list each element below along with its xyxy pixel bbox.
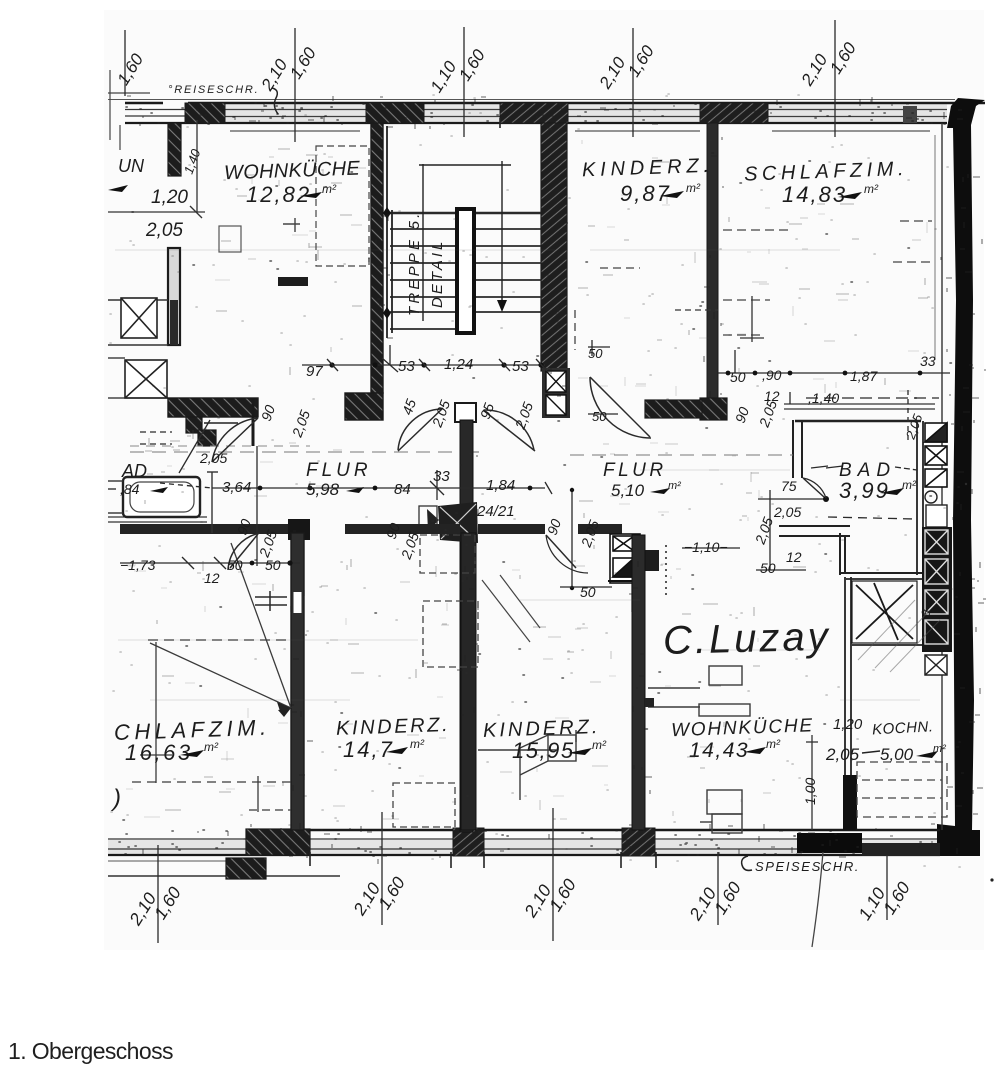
svg-text:53: 53 bbox=[512, 358, 529, 375]
svg-text:14,7: 14,7 bbox=[343, 737, 394, 762]
svg-text:−1,10−: −1,10− bbox=[684, 539, 728, 555]
svg-text:UN: UN bbox=[118, 156, 145, 176]
svg-text:1,84: 1,84 bbox=[486, 477, 515, 494]
svg-text:15,95: 15,95 bbox=[512, 738, 575, 763]
svg-text:3,99: 3,99 bbox=[839, 478, 890, 503]
svg-text:5,00: 5,00 bbox=[880, 745, 914, 764]
svg-text:KINDERZ.: KINDERZ. bbox=[582, 155, 714, 182]
svg-text:12: 12 bbox=[786, 549, 802, 565]
svg-text:1. Obergeschoss: 1. Obergeschoss bbox=[8, 1038, 173, 1064]
svg-text:KINDERZ.: KINDERZ. bbox=[336, 714, 451, 740]
svg-text:m²: m² bbox=[933, 743, 946, 755]
svg-text:AD: AD bbox=[121, 461, 147, 481]
svg-text:C.Luzay: C.Luzay bbox=[662, 615, 831, 663]
svg-text:12: 12 bbox=[204, 570, 220, 586]
svg-text:84: 84 bbox=[394, 481, 411, 498]
svg-text:50: 50 bbox=[227, 557, 243, 573]
svg-text:DETAIL: DETAIL bbox=[429, 239, 446, 308]
svg-text:50: 50 bbox=[760, 560, 776, 576]
svg-text:50: 50 bbox=[592, 409, 607, 424]
svg-text:m²: m² bbox=[322, 182, 337, 196]
svg-text:97: 97 bbox=[306, 363, 323, 380]
svg-text:m²: m² bbox=[592, 738, 607, 752]
svg-text:m²: m² bbox=[766, 737, 781, 751]
svg-text:75: 75 bbox=[781, 478, 797, 494]
svg-text:33: 33 bbox=[920, 353, 936, 369]
svg-text:°REISESCHR.: °REISESCHR. bbox=[168, 84, 259, 96]
svg-text:5,10: 5,10 bbox=[611, 481, 645, 500]
svg-text:14,43: 14,43 bbox=[689, 739, 749, 762]
svg-text:3,64: 3,64 bbox=[222, 479, 251, 496]
svg-text:1,87: 1,87 bbox=[850, 368, 878, 384]
svg-text:14,83: 14,83 bbox=[782, 182, 847, 207]
svg-text:33: 33 bbox=[433, 468, 450, 485]
svg-text:m²: m² bbox=[902, 478, 917, 492]
svg-text:FLUR: FLUR bbox=[306, 460, 372, 481]
svg-text:1,20: 1,20 bbox=[151, 187, 188, 208]
svg-text:50: 50 bbox=[588, 346, 603, 361]
svg-text:50: 50 bbox=[730, 369, 746, 385]
svg-text:,90: ,90 bbox=[762, 367, 782, 383]
svg-text:1,20: 1,20 bbox=[833, 716, 863, 733]
svg-text:TREPPE 5.: TREPPE 5. bbox=[406, 211, 423, 317]
svg-text:9,87: 9,87 bbox=[620, 181, 671, 206]
svg-text:SPEISESCHR.: SPEISESCHR. bbox=[755, 859, 860, 874]
svg-text:16,63: 16,63 bbox=[125, 740, 193, 765]
svg-text:50: 50 bbox=[580, 584, 596, 600]
svg-text:2,05: 2,05 bbox=[145, 220, 183, 241]
svg-text:,1,40: ,1,40 bbox=[808, 390, 839, 406]
svg-text:2,05: 2,05 bbox=[773, 504, 801, 520]
svg-text:,84: ,84 bbox=[120, 481, 140, 497]
svg-text:m²: m² bbox=[686, 181, 701, 195]
svg-text:50: 50 bbox=[265, 557, 281, 573]
svg-text:m²: m² bbox=[410, 737, 425, 751]
svg-text:1,24: 1,24 bbox=[444, 356, 473, 373]
svg-text:KOCHN.: KOCHN. bbox=[872, 718, 934, 738]
svg-text:m²: m² bbox=[864, 182, 879, 196]
svg-text:53: 53 bbox=[398, 358, 415, 375]
svg-text:m²: m² bbox=[668, 480, 681, 492]
svg-text:24/21: 24/21 bbox=[476, 503, 515, 520]
svg-text:2,05: 2,05 bbox=[825, 745, 860, 764]
svg-text:2,05: 2,05 bbox=[199, 450, 227, 466]
svg-text:5,98: 5,98 bbox=[306, 480, 340, 499]
svg-text:1,00: 1,00 bbox=[802, 778, 818, 805]
svg-text:m²: m² bbox=[204, 740, 219, 754]
